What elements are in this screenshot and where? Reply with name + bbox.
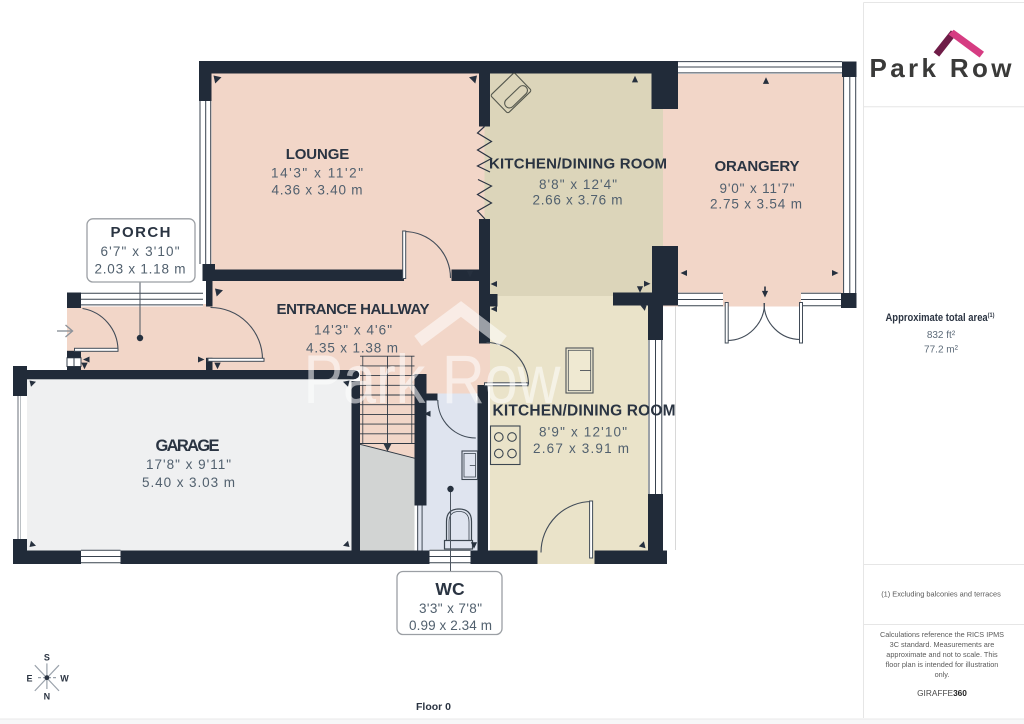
- svg-text:4.35 x 1.38 m: 4.35 x 1.38 m: [306, 341, 398, 356]
- svg-text:0.99 x 2.34 m: 0.99 x 2.34 m: [409, 618, 492, 633]
- svg-text:3C standard. Measurements are: 3C standard. Measurements are: [890, 640, 995, 649]
- svg-text:4.36 x 3.40 m: 4.36 x 3.40 m: [272, 183, 363, 198]
- svg-text:Park Row: Park Row: [870, 53, 1013, 83]
- svg-text:ORANGERY: ORANGERY: [715, 158, 800, 175]
- svg-text:Calculations reference the RIC: Calculations reference the RICS IPMS: [880, 630, 1004, 639]
- svg-text:GARAGE: GARAGE: [156, 437, 220, 455]
- svg-text:E: E: [26, 673, 32, 683]
- svg-text:ENTRANCE HALLWAY: ENTRANCE HALLWAY: [277, 301, 430, 318]
- svg-text:N: N: [44, 692, 51, 702]
- svg-text:2.67 x 3.91 m: 2.67 x 3.91 m: [533, 441, 629, 456]
- svg-text:LOUNGE: LOUNGE: [286, 146, 350, 163]
- svg-text:Approximate total area(1): Approximate total area(1): [886, 312, 995, 324]
- svg-text:only.: only.: [935, 670, 950, 679]
- svg-text:KITCHEN/DINING ROOM: KITCHEN/DINING ROOM: [493, 403, 676, 420]
- svg-text:2.03 x 1.18 m: 2.03 x 1.18 m: [95, 262, 186, 277]
- svg-text:3'3" x 7'8": 3'3" x 7'8": [419, 601, 482, 616]
- svg-text:17'8" x 9'11": 17'8" x 9'11": [146, 457, 231, 472]
- svg-text:2.75 x 3.54 m: 2.75 x 3.54 m: [710, 197, 802, 212]
- svg-text:W: W: [60, 673, 69, 683]
- svg-text:approximate and not to scale.: approximate and not to scale. This: [886, 650, 998, 659]
- svg-text:PORCH: PORCH: [111, 224, 171, 241]
- svg-text:(1) Excluding balconies and te: (1) Excluding balconies and terraces: [881, 590, 1001, 599]
- svg-text:8'9" x 12'10": 8'9" x 12'10": [539, 425, 627, 440]
- svg-text:Floor 0: Floor 0: [416, 701, 451, 713]
- svg-text:floor plan is intended for ill: floor plan is intended for illustration: [886, 660, 999, 669]
- svg-text:2.66 x 3.76 m: 2.66 x 3.76 m: [533, 193, 623, 208]
- svg-text:77.2 m²: 77.2 m²: [924, 345, 959, 356]
- svg-text:8'8" x 12'4": 8'8" x 12'4": [539, 177, 617, 192]
- svg-text:14'3" x 11'2": 14'3" x 11'2": [271, 166, 363, 181]
- svg-text:832 ft²: 832 ft²: [927, 330, 956, 341]
- svg-text:GIRAFFE360: GIRAFFE360: [917, 688, 967, 698]
- svg-text:14'3" x 4'6": 14'3" x 4'6": [314, 323, 392, 338]
- svg-text:WC: WC: [435, 579, 465, 599]
- svg-text:5.40 x 3.03 m: 5.40 x 3.03 m: [142, 475, 235, 490]
- svg-text:6'7" x 3'10": 6'7" x 3'10": [101, 244, 180, 259]
- svg-text:S: S: [44, 653, 50, 663]
- svg-text:KITCHEN/DINING ROOM: KITCHEN/DINING ROOM: [489, 156, 667, 173]
- svg-text:9'0" x 11'7": 9'0" x 11'7": [720, 181, 795, 196]
